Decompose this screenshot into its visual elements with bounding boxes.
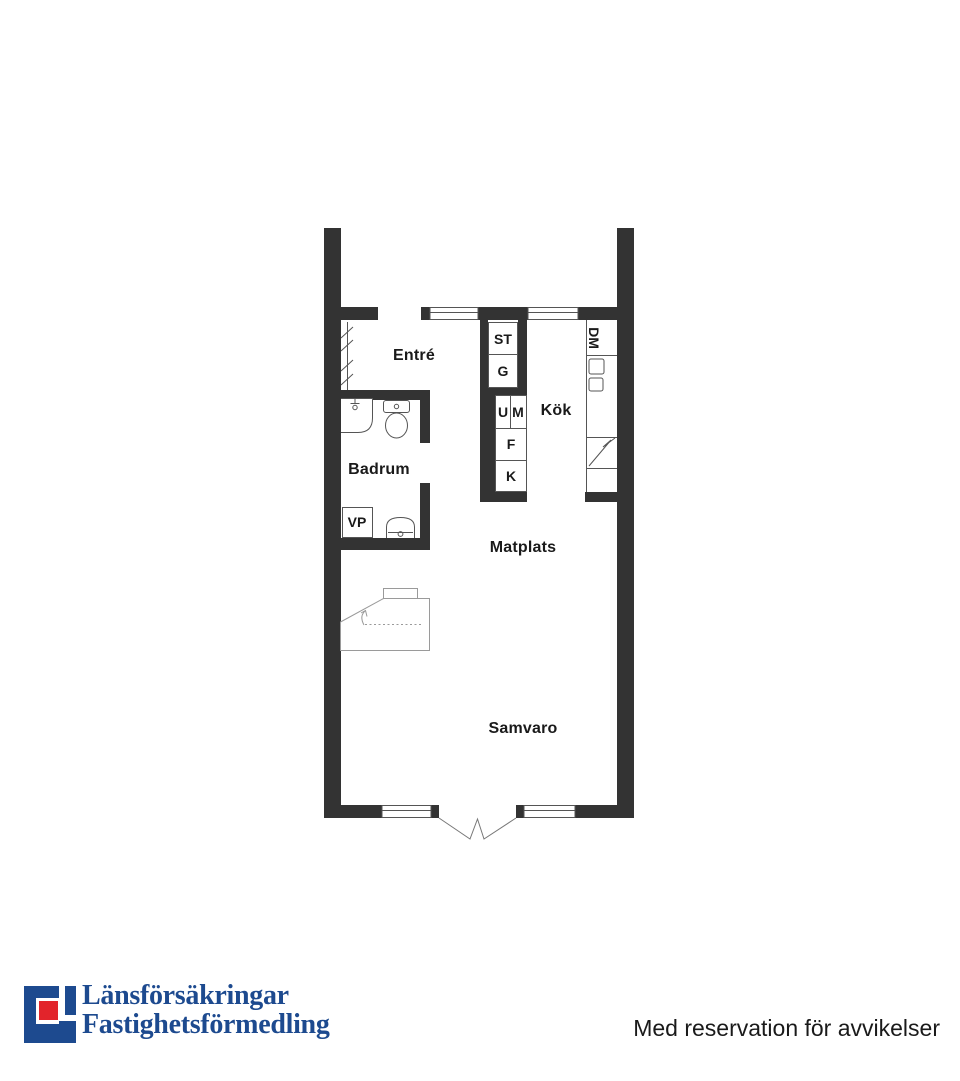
room-label-kok: Kök [541, 402, 572, 420]
window [524, 806, 575, 818]
logo-text-line1: Länsförsäkringar [82, 982, 330, 1011]
floorplan-page: Entré Badrum Kök Matplats Samvaro ST G U… [0, 0, 960, 1081]
stove-icon [589, 438, 615, 466]
logo-text-line2: Fastighetsförmedling [82, 1011, 330, 1040]
fixture-label-vp: VP [348, 514, 367, 530]
wall-closet-left2 [488, 395, 495, 502]
wall-left [324, 228, 341, 818]
wall-closet-left [480, 307, 488, 502]
bed-icon [341, 589, 430, 651]
wall-top-a [341, 307, 378, 320]
window [382, 806, 431, 818]
disclaimer-text: Med reservation för avvikelser [633, 1015, 940, 1042]
wall-counter-cap [585, 492, 618, 502]
room-label-samvaro: Samvaro [489, 720, 558, 738]
fixture-label-g: G [498, 363, 509, 379]
lansforsakringar-logo-icon [24, 986, 76, 1043]
sink-icon [589, 359, 604, 391]
fixture-label-dm: DM [586, 327, 602, 349]
room-label-matplats: Matplats [490, 539, 557, 557]
wall-badrum-bottom [341, 538, 430, 550]
room-label-entre: Entré [393, 347, 435, 365]
wall-bottom-a [341, 805, 382, 818]
washbasin-icon [387, 518, 415, 539]
wall-bottom-d [575, 805, 617, 818]
fixture-label-f: F [507, 436, 516, 452]
wall-top-d [578, 307, 617, 320]
room-label-badrum: Badrum [348, 461, 410, 479]
wall-bottom-b [431, 805, 439, 818]
floorplan-drawing [0, 0, 960, 1081]
wall-badrum-right-upper [420, 390, 430, 443]
fixture-label-u: U [498, 404, 508, 420]
wall-right [617, 228, 634, 818]
toilet-icon [384, 401, 410, 439]
wall-bottom-c [516, 805, 524, 818]
fixture-label-m: M [512, 404, 524, 420]
logo-text: Länsförsäkringar Fastighetsförmedling [82, 982, 330, 1039]
wall-closet-right [518, 320, 527, 390]
fixture-label-st: ST [494, 331, 512, 347]
fixture-label-k: K [506, 468, 516, 484]
double-door-icon [439, 818, 516, 839]
wall-closet-cap [488, 492, 527, 502]
wardrobe-hatch-icon [341, 322, 353, 390]
corner-sink-icon [341, 398, 373, 433]
window [430, 308, 478, 320]
wall-top-b [421, 307, 430, 320]
logo-red-square [39, 1001, 58, 1020]
window [528, 308, 578, 320]
